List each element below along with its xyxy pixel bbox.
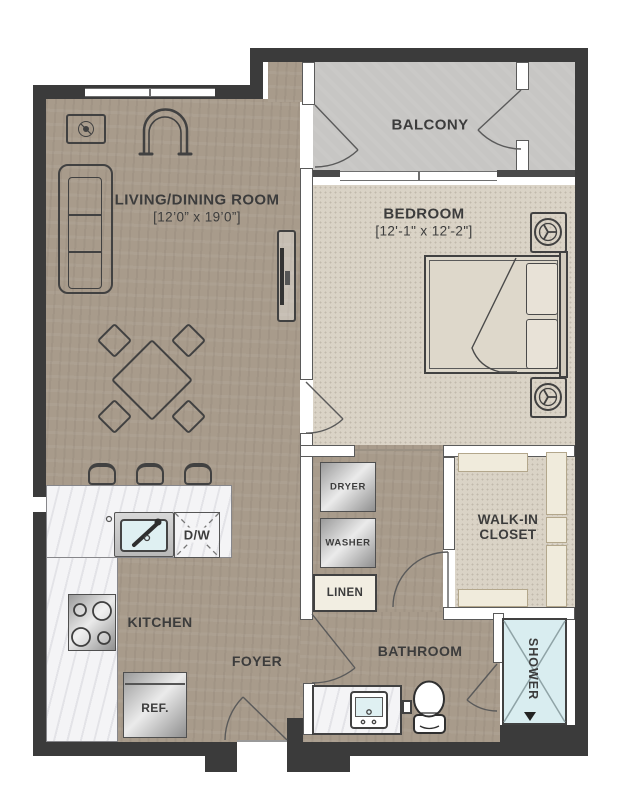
closet-shelf-right-top	[546, 452, 567, 515]
bathroom-label: BATHROOM	[378, 643, 463, 659]
sofa-seat	[68, 177, 102, 289]
left-wall-break	[33, 497, 46, 512]
balcony-bedroom-wall-right	[497, 170, 575, 177]
refrigerator-label: REF.	[141, 701, 169, 715]
outer-wall-top-right	[250, 48, 588, 62]
balcony-living-stub	[302, 62, 315, 105]
bedroom-window-mullion	[418, 171, 420, 181]
washer-label: WASHER	[325, 538, 370, 549]
balcony-label: BALCONY	[392, 117, 469, 134]
balcony-alcove-floor	[268, 62, 302, 102]
tv-mount	[285, 271, 290, 285]
closet-shelf-right-bottom	[546, 545, 567, 607]
closet-shelf-right-middle	[546, 517, 567, 543]
bar-stool	[88, 463, 116, 485]
bedroom-bottom-wall-left	[300, 445, 355, 457]
tv-screen	[280, 248, 284, 305]
closet-shelf-top	[458, 453, 528, 472]
pillow	[526, 319, 558, 369]
outer-wall-left	[33, 85, 46, 756]
bedroom-label: BEDROOM	[383, 206, 464, 223]
closet-label-line1: WALK-IN	[478, 512, 539, 527]
closet-label: WALK-IN CLOSET	[478, 512, 539, 542]
bar-stool	[184, 463, 212, 485]
closet-shelf-bottom	[458, 589, 528, 607]
pillow	[526, 263, 558, 315]
closet-left-wall	[443, 457, 455, 550]
outer-wall-right	[575, 48, 588, 756]
closet-label-line2: CLOSET	[479, 527, 536, 542]
soap-dish	[402, 700, 412, 714]
balcony-divider-stub-top	[516, 62, 529, 90]
bar-stool	[136, 463, 164, 485]
bath-corner-step	[287, 718, 303, 744]
bed-headboard	[559, 251, 568, 378]
sofa-cushion-line-1	[68, 214, 102, 216]
living-window-mullion	[149, 88, 151, 97]
kitchen-sink-basin	[120, 519, 168, 552]
stove	[68, 594, 116, 651]
floor-plan: LIVING/DINING ROOM [12’0” x 19’0”] BEDRO…	[0, 0, 630, 810]
balcony-bedroom-wall-left	[313, 170, 340, 177]
living-bedroom-wall	[300, 168, 313, 380]
living-room-dims: [12’0” x 19’0”]	[153, 210, 241, 225]
shower-label: SHOWER	[526, 638, 540, 700]
entry-jamb-left	[205, 742, 237, 772]
nightstand	[530, 212, 567, 253]
dryer-label: DRYER	[330, 482, 366, 493]
nightstand	[530, 377, 567, 418]
shower-bottom-wall	[500, 725, 588, 743]
bedroom-wall-lower-stub	[300, 433, 313, 620]
refrigerator-door-line	[125, 683, 185, 685]
kitchen-label: KITCHEN	[127, 614, 192, 630]
living-room-label: LIVING/DINING ROOM	[115, 192, 280, 209]
dishwasher-label: D/W	[182, 528, 212, 543]
foyer-label: FOYER	[232, 653, 282, 669]
bedroom-dims: [12'-1" x 12'-2"]	[375, 224, 472, 239]
linen-label: LINEN	[327, 587, 364, 599]
entry-jamb-right	[287, 742, 350, 772]
vanity-sink-basin	[355, 697, 383, 717]
sofa-cushion-line-2	[68, 251, 102, 253]
entry-threshold	[237, 740, 287, 742]
bedroom-hall-threshold	[355, 449, 443, 451]
speaker-icon	[78, 121, 94, 137]
